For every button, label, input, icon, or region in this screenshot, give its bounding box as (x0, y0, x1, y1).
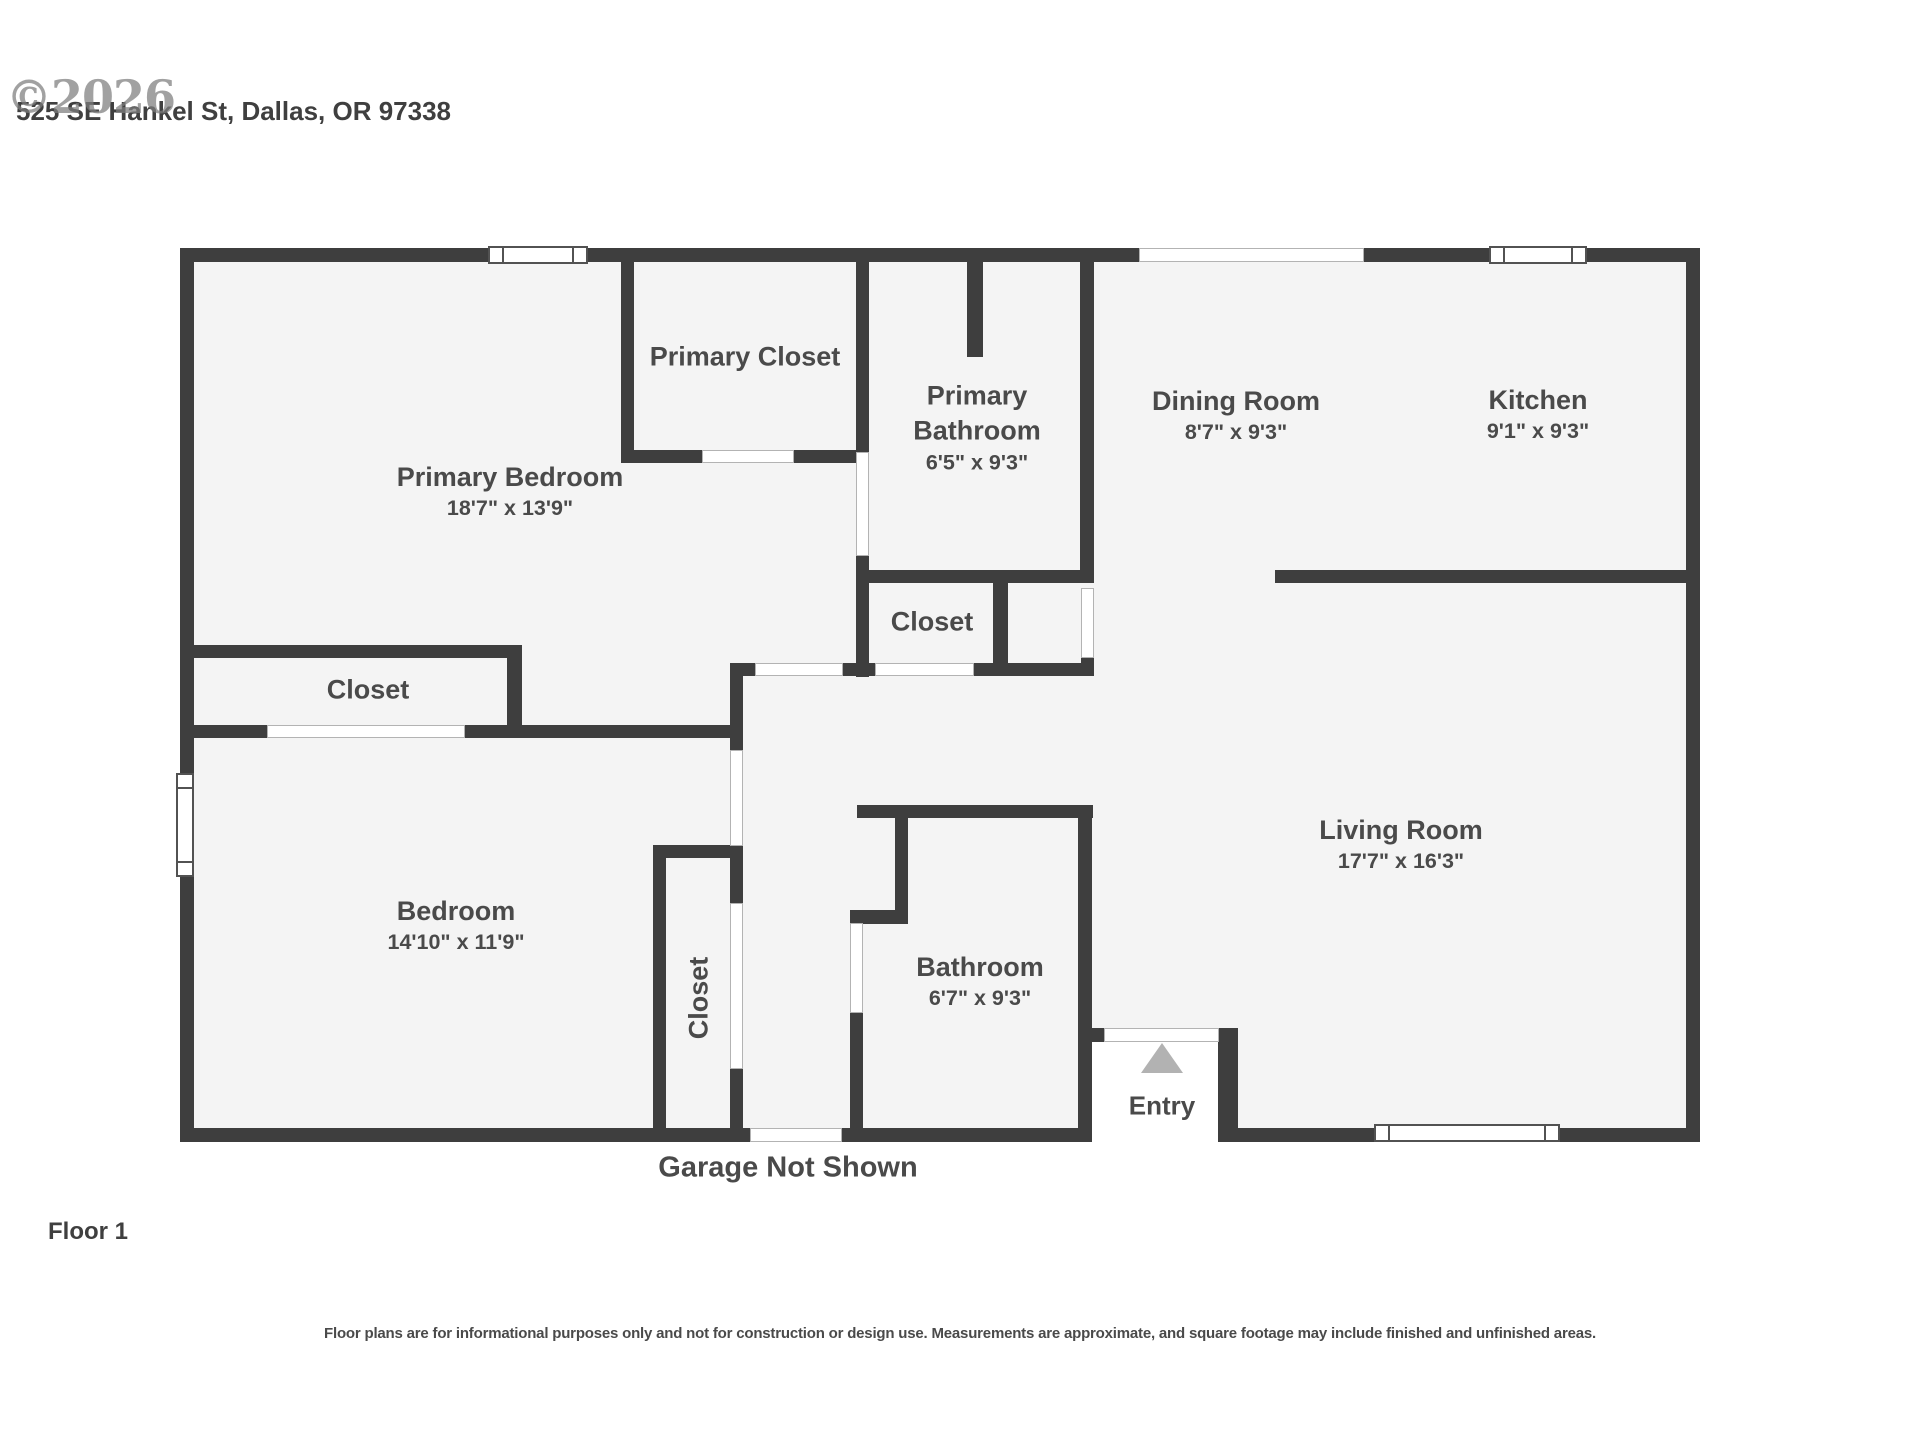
bathroom-door (850, 923, 863, 1013)
wall-segment (180, 248, 194, 1142)
wall-segment (730, 663, 743, 751)
wall-segment (993, 570, 1008, 676)
room-label-bedroom: Bedroom 14'10" x 11'9" (387, 895, 524, 957)
room-label-hall-closet: Closet (891, 606, 974, 639)
wall-segment (1218, 1028, 1238, 1142)
wall-segment (1686, 248, 1700, 1142)
primary-bedroom-window (488, 246, 588, 264)
wall-segment (857, 805, 1093, 818)
primary-closet-door (702, 450, 794, 463)
room-label-living-room: Living Room 17'7" x 16'3" (1319, 814, 1483, 876)
entry-arrow-icon (1141, 1043, 1183, 1073)
entry-door (1104, 1028, 1219, 1042)
wall-segment (180, 248, 1700, 262)
wall-segment (850, 910, 908, 924)
room-label-primary-bathroom: Primary Bathroom 6'5" x 9'3" (872, 379, 1082, 478)
disclaimer-text: Floor plans are for informational purpos… (324, 1325, 1596, 1342)
wall-segment (730, 1068, 743, 1130)
dining-room-window-opening (1139, 248, 1364, 262)
bedroom-window (176, 773, 194, 877)
wall-segment (180, 1128, 750, 1142)
room-label-primary-closet: Primary Closet (650, 341, 841, 374)
wall-segment (1275, 570, 1700, 583)
wall-segment (522, 725, 738, 738)
room-label-left-closet: Closet (327, 674, 410, 707)
hall-closet-door (875, 663, 974, 676)
wall-segment (180, 725, 267, 738)
wall-segment (621, 262, 634, 452)
copyright-watermark: ©2026 (6, 70, 175, 124)
wall-segment (856, 570, 1094, 583)
room-label-primary-bedroom: Primary Bedroom 18'7" x 13'9" (397, 461, 624, 523)
wall-segment (973, 663, 1094, 676)
wall-segment (842, 1128, 1092, 1142)
wall-segment (850, 1012, 863, 1130)
garage-note: Garage Not Shown (658, 1152, 917, 1185)
hall-bedroom-door (730, 750, 743, 846)
wall-segment (730, 858, 743, 904)
primary-bathroom-door (856, 452, 869, 556)
wall-segment (842, 663, 856, 676)
wall-segment (856, 663, 876, 676)
room-label-kitchen: Kitchen 9'1" x 9'3" (1487, 384, 1589, 446)
small-closet-door (1081, 588, 1094, 658)
room-label-dining-room: Dining Room 8'7" x 9'3" (1152, 385, 1320, 447)
wall-segment (653, 845, 666, 1130)
wall-segment (856, 262, 869, 453)
wall-segment (1080, 262, 1094, 583)
floor-label: Floor 1 (48, 1218, 128, 1246)
wall-segment (895, 805, 908, 923)
wall-segment (465, 725, 522, 738)
wall-segment (653, 845, 743, 858)
floor-plan-page: 525 SE Hankel St, Dallas, OR 97338 ©2026 (0, 0, 1920, 1440)
hall-door (755, 663, 843, 676)
garage-door-opening (750, 1128, 842, 1142)
living-room-window (1374, 1124, 1560, 1142)
kitchen-window (1489, 246, 1587, 264)
wall-segment (1081, 655, 1094, 676)
room-label-vertical-closet: Closet (683, 957, 716, 1040)
wall-segment (1078, 818, 1092, 1142)
wall-segment (621, 450, 703, 463)
room-label-entry: Entry (1129, 1091, 1195, 1122)
wall-segment (967, 262, 983, 357)
room-label-bathroom: Bathroom 6'7" x 9'3" (916, 951, 1044, 1013)
left-closet-door (267, 725, 465, 738)
vertical-closet-door (730, 903, 743, 1069)
wall-segment (180, 645, 522, 658)
